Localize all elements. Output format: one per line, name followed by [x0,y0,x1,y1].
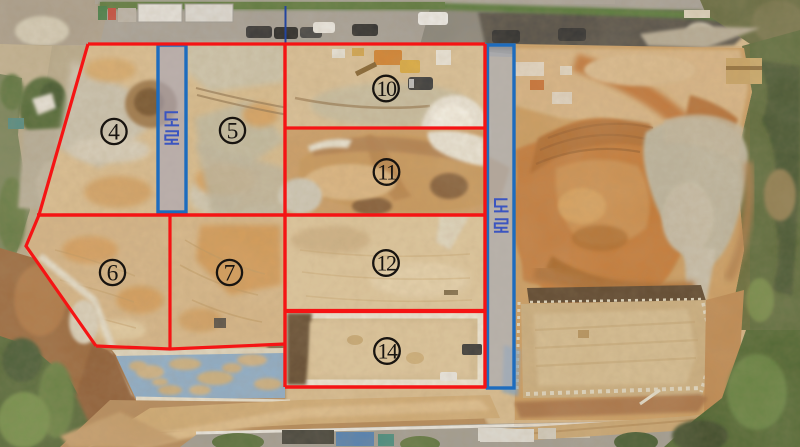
svg-text:6: 6 [107,261,119,287]
svg-text:12: 12 [377,251,397,276]
svg-text:11: 11 [377,160,396,185]
svg-text:7: 7 [224,261,236,287]
svg-text:14: 14 [378,339,399,364]
svg-text:10: 10 [377,76,398,101]
svg-text:4: 4 [108,120,120,146]
svg-text:5: 5 [227,119,239,145]
